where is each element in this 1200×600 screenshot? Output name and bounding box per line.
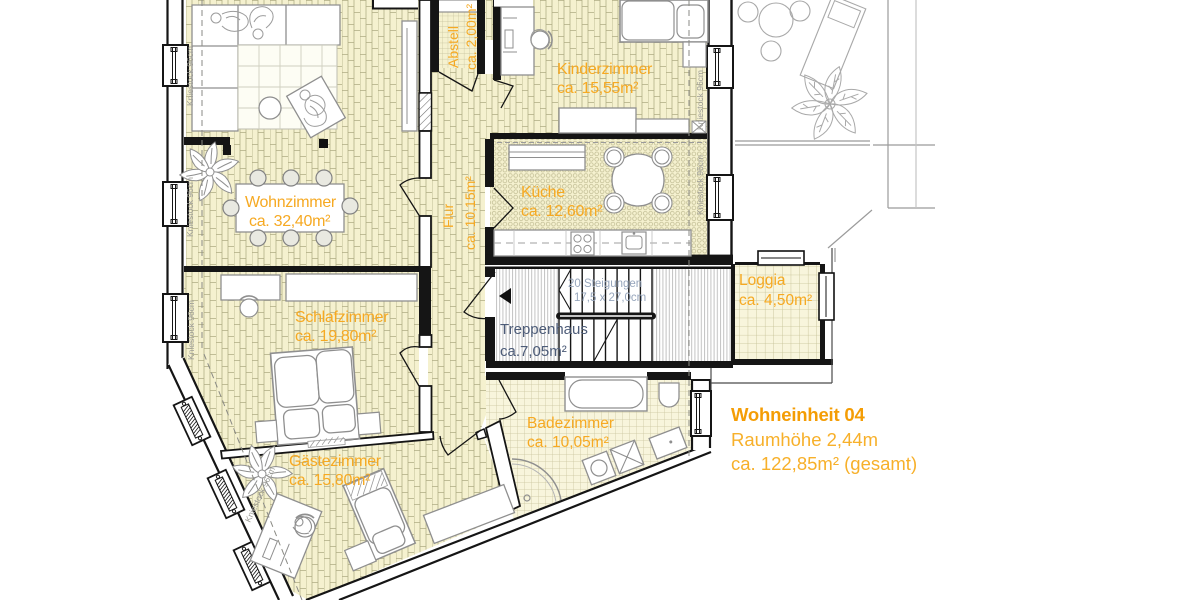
svg-text:Küche: Küche — [521, 184, 565, 201]
svg-text:ca. 4,50m²: ca. 4,50m² — [739, 292, 812, 309]
svg-text:ca. 15,80m²: ca. 15,80m² — [289, 472, 371, 489]
svg-text:ca. 32,40m²: ca. 32,40m² — [249, 213, 331, 230]
svg-text:ca. 12,60m²: ca. 12,60m² — [521, 203, 603, 220]
svg-text:Schlafzimmer: Schlafzimmer — [295, 309, 389, 326]
svg-text:Treppenhaus: Treppenhaus — [500, 321, 588, 338]
svg-text:Kniestock 96cm: Kniestock 96cm — [695, 155, 705, 215]
svg-text:Badezimmer: Badezimmer — [527, 415, 614, 432]
svg-text:ca. 10,15m²: ca. 10,15m² — [462, 176, 478, 250]
svg-text:17,5 x 27,0cm: 17,5 x 27,0cm — [574, 292, 646, 304]
svg-text:Flur: Flur — [440, 204, 456, 228]
svg-text:ca.7,05m²: ca.7,05m² — [500, 343, 567, 360]
svg-text:Kinderzimmer: Kinderzimmer — [557, 61, 653, 78]
svg-text:Kniestock 96cm: Kniestock 96cm — [695, 70, 705, 130]
svg-text:Kniestock 96cm: Kniestock 96cm — [185, 46, 195, 106]
svg-text:Wohneinheit 04: Wohneinheit 04 — [731, 404, 865, 425]
svg-text:Wohnzimmer: Wohnzimmer — [245, 194, 337, 211]
svg-text:Loggia: Loggia — [739, 272, 786, 289]
svg-text:20 Steigungen: 20 Steigungen — [568, 278, 642, 290]
svg-text:Abstell: Abstell — [445, 26, 461, 68]
svg-text:ca. 2,00m²: ca. 2,00m² — [463, 4, 479, 70]
svg-text:Gästezimmer: Gästezimmer — [289, 453, 382, 470]
svg-text:Kniestock 96cm: Kniestock 96cm — [185, 177, 195, 237]
svg-text:Kniestock 96cm: Kniestock 96cm — [186, 300, 196, 360]
svg-text:ca. 122,85m² (gesamt): ca. 122,85m² (gesamt) — [731, 453, 917, 474]
svg-text:ca. 10,05m²: ca. 10,05m² — [527, 434, 609, 451]
svg-text:ca. 15,55m²: ca. 15,55m² — [557, 80, 639, 97]
svg-text:Raumhöhe 2,44m: Raumhöhe 2,44m — [731, 429, 878, 450]
svg-text:ca. 19,80m²: ca. 19,80m² — [295, 328, 377, 345]
